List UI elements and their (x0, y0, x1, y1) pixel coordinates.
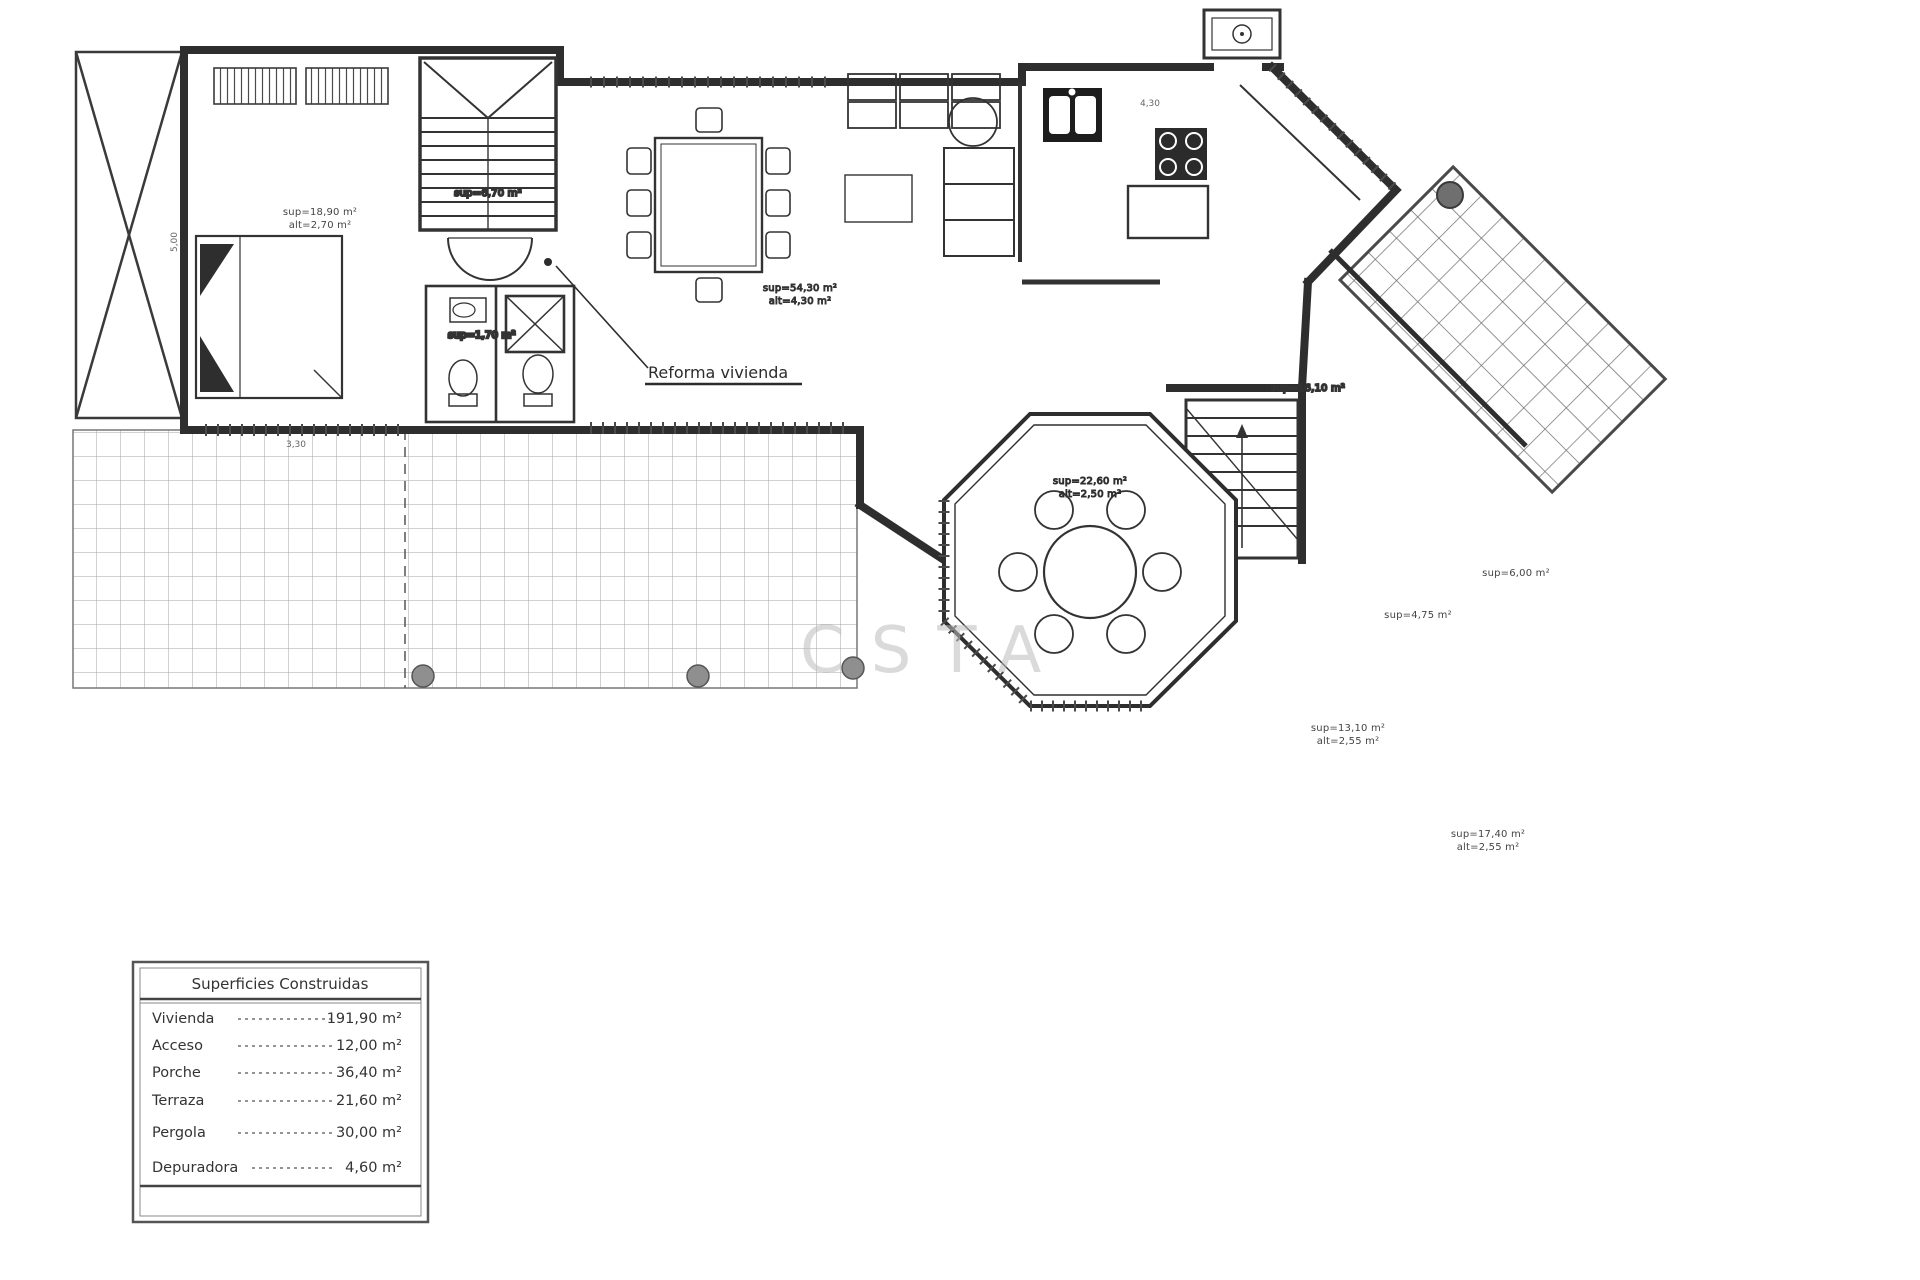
dining-table (627, 108, 790, 302)
counter-edge (1240, 85, 1360, 200)
bedroom2-height-label: alt=2,55 m² (1317, 736, 1380, 747)
living-area-label: sup=54,30 m² (763, 283, 837, 294)
hall-area-label: sup=16,10 m² (1271, 383, 1345, 394)
legend-row-value: 36,40 m² (336, 1065, 402, 1081)
legend-row-value: 4,60 m² (345, 1160, 402, 1176)
coffee-table (845, 175, 912, 222)
living-height-label: alt=4,30 m² (769, 296, 832, 307)
bathrooms-small: sup=1,70 m² (426, 286, 574, 422)
pergola-post-dark (1437, 182, 1463, 208)
vestibule (448, 238, 552, 280)
legend-row-value: 12,00 m² (336, 1038, 402, 1054)
porch-post (687, 665, 709, 687)
porch-tiled-terrace (73, 430, 864, 688)
shower (506, 296, 564, 352)
staircase-main: sup=6,70 m² (420, 58, 556, 230)
dim-bedroom-width: 3,30 (286, 440, 306, 450)
toilet (523, 355, 553, 393)
wardrobe (214, 68, 296, 104)
living-room: sup=54,30 m² alt=4,30 m² (627, 74, 1020, 307)
kitchen-island (1128, 186, 1208, 238)
sofa (944, 148, 1014, 256)
bath-small-area-label: sup=1,70 m² (448, 330, 516, 341)
legend-row-label: Acceso (152, 1038, 203, 1054)
porch-post (412, 665, 434, 687)
reforma-label: Reforma vivienda (648, 363, 788, 382)
watermark: CSTA (800, 614, 1067, 688)
bedroom1-height-label: alt=2,70 m² (289, 220, 352, 231)
legend-row-value: 191,90 m² (327, 1011, 402, 1027)
legend-row-label: Porche (152, 1065, 201, 1081)
bedroom1: sup=18,90 m² alt=2,70 m² (196, 68, 388, 398)
entrance-porch (1204, 10, 1280, 58)
pergola-top-right (1340, 167, 1665, 492)
legend-row-label: Vivienda (152, 1011, 214, 1027)
legend-row-label: Depuradora (152, 1160, 238, 1176)
double-bed (196, 236, 342, 398)
wardrobe (306, 68, 388, 104)
dim-kitchen: 4,30 (1140, 99, 1160, 109)
toilet (449, 360, 477, 396)
floor-plan-drawing: sup=18,90 m² alt=2,70 m² sup=6,70 m² (0, 0, 1920, 1280)
bedroom3-area-label: sup=17,40 m² (1451, 829, 1525, 840)
stove (1155, 128, 1207, 180)
legend-table: Superficies Construidas Vivienda 191,90 … (133, 962, 428, 1222)
kitchen (1022, 85, 1360, 282)
bedroom2-area-label: sup=13,10 m² (1311, 723, 1385, 734)
bedroom3-height-label: alt=2,55 m² (1457, 842, 1520, 853)
octagon-area-label: sup=22,60 m² (1053, 476, 1127, 487)
distributor-area-label: sup=4,75 m² (1384, 610, 1452, 621)
pergola-left (76, 52, 182, 418)
legend-title: Superficies Construidas (192, 975, 369, 993)
legend-row-label: Pergola (152, 1125, 206, 1141)
legend-row-label: Terraza (151, 1093, 204, 1109)
legend-row-value: 30,00 m² (336, 1125, 402, 1141)
octagon-height-label: alt=2,50 m² (1059, 489, 1122, 500)
window-ticks (205, 67, 1396, 430)
round-chair (949, 98, 997, 146)
legend-row-value: 21,60 m² (336, 1093, 402, 1109)
sink (450, 298, 486, 322)
bathroom-right-area-label: sup=6,00 m² (1482, 568, 1550, 579)
dim-bedroom-height: 5,00 (170, 232, 180, 252)
stairs-area-label: sup=6,70 m² (454, 188, 522, 199)
bedroom1-area-label: sup=18,90 m² (283, 207, 357, 218)
floor-plan-page: sup=18,90 m² alt=2,70 m² sup=6,70 m² (0, 0, 1920, 1280)
